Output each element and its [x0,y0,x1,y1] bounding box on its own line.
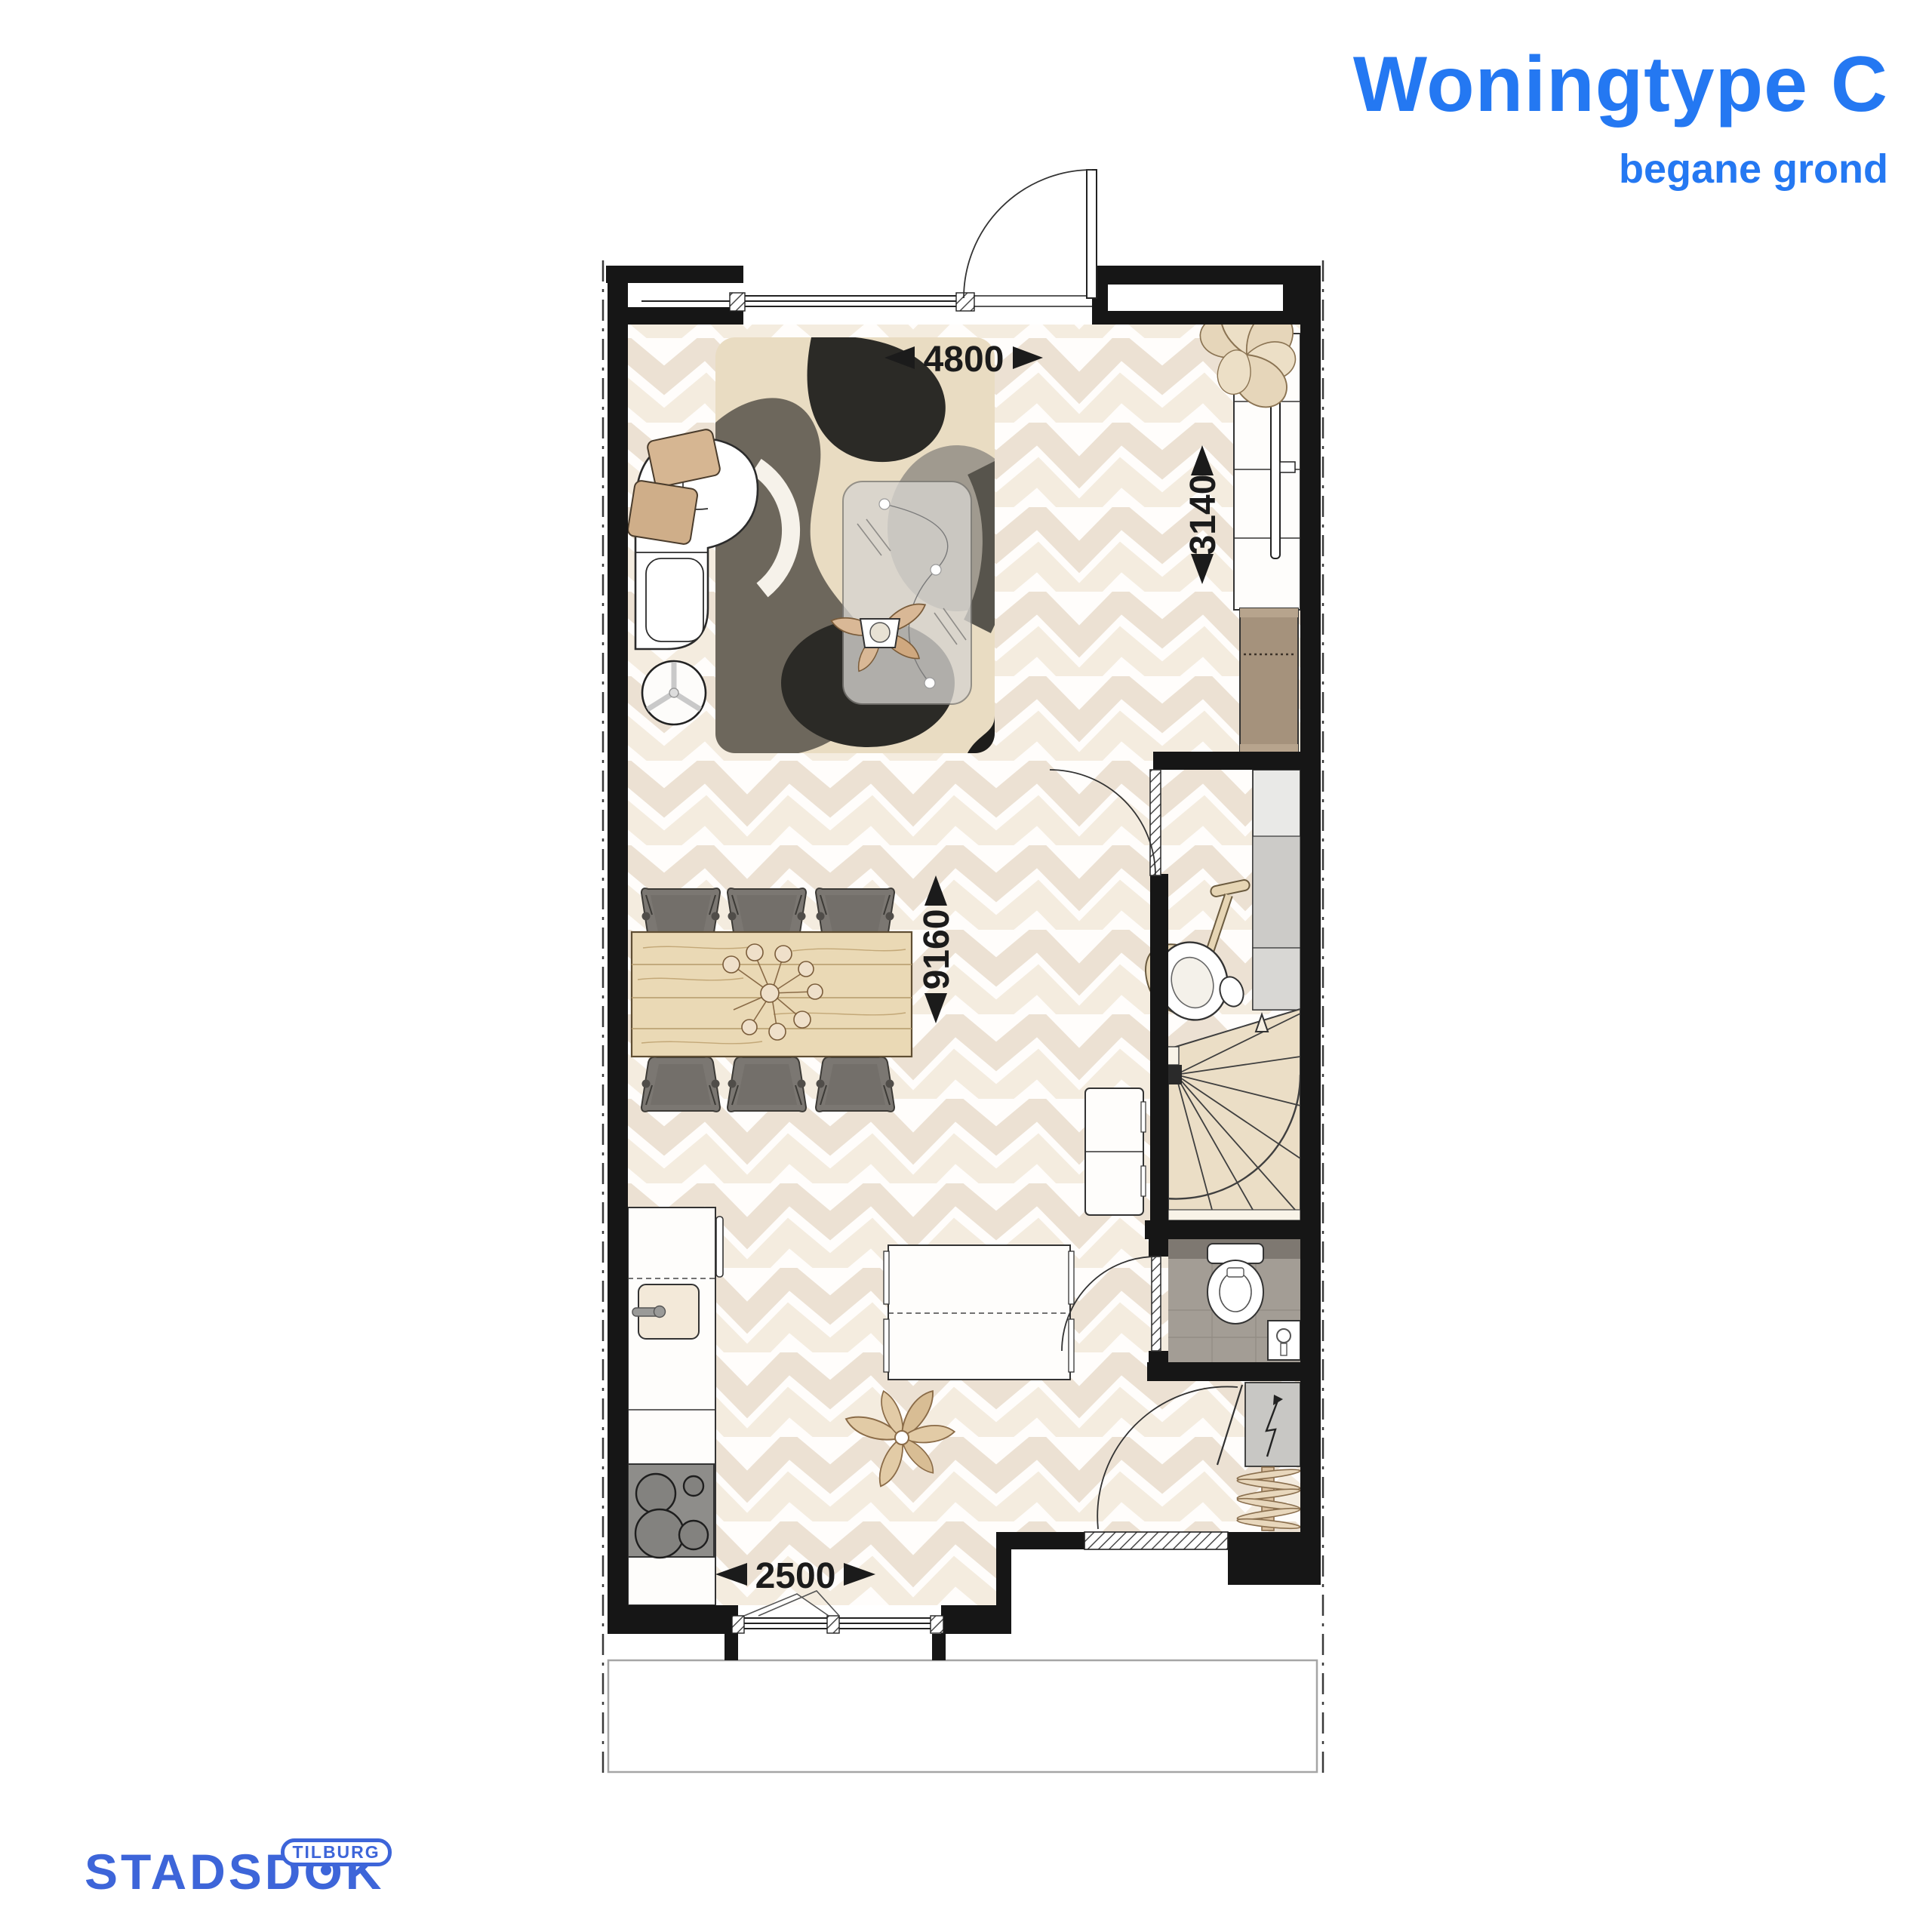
tall-cabinet [1085,1088,1146,1215]
front-door [964,170,1097,306]
hall-closet [1253,770,1300,1010]
rear-window [1084,1532,1228,1549]
toilet-fixture [1207,1244,1263,1324]
toilet-room [1168,1239,1300,1362]
floorplan-drawing: 4800 3140 9160 2500 [0,0,1932,1932]
coffee-table [843,481,971,704]
sideboard [1240,608,1298,753]
toilet-sink [1268,1321,1300,1360]
dim-label-9160: 9160 [917,909,957,990]
dim-label-2500: 2500 [755,1556,836,1596]
dim-label-4800: 4800 [924,340,1004,380]
logo-badge-tilburg: TILBURG [281,1838,391,1866]
kitchen-island [884,1245,1074,1380]
logo-stadsdok: STADSDOTILBURGK [85,1843,384,1900]
dining-set [632,888,912,1112]
appliance-handle [716,1217,723,1277]
kitchen-counter [628,1207,723,1605]
side-table [642,661,706,724]
kitchen-sink [632,1284,699,1339]
stove [628,1464,714,1558]
logo-text-prefix: STADSD [85,1844,303,1900]
terrace-outline [608,1660,1317,1772]
dim-label-3140: 3140 [1183,475,1223,555]
